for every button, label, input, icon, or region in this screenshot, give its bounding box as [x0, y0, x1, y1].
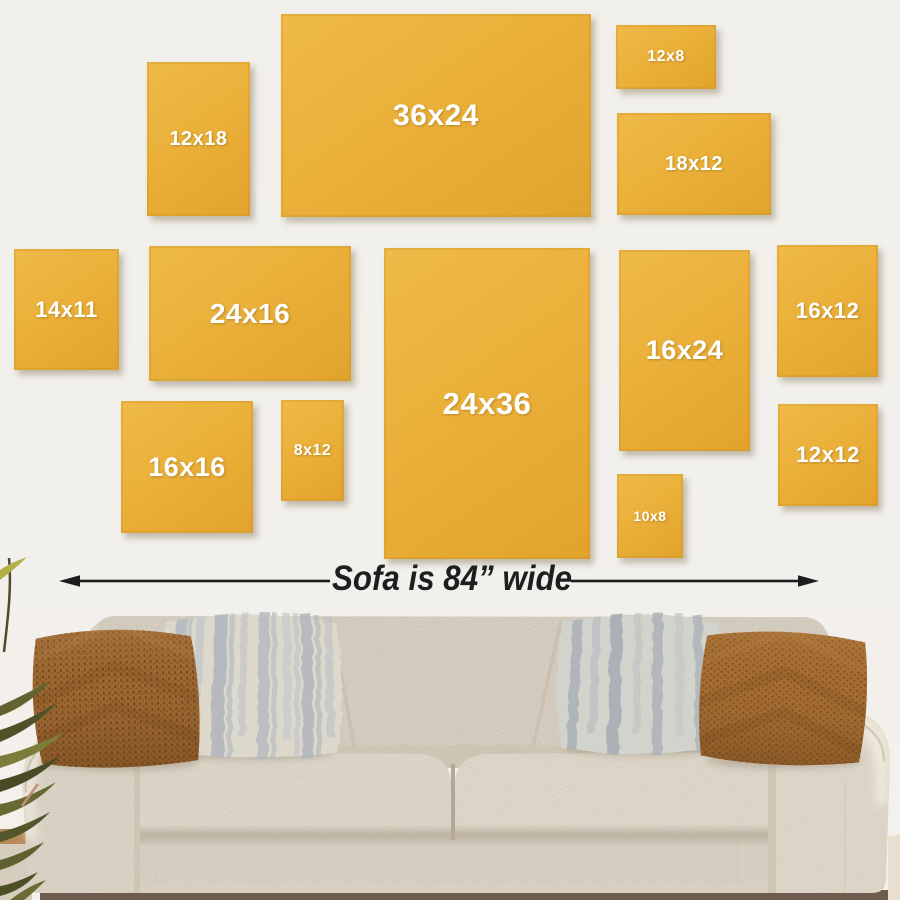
svg-text:Sofa is 84” wide: Sofa is 84” wide: [332, 559, 572, 598]
